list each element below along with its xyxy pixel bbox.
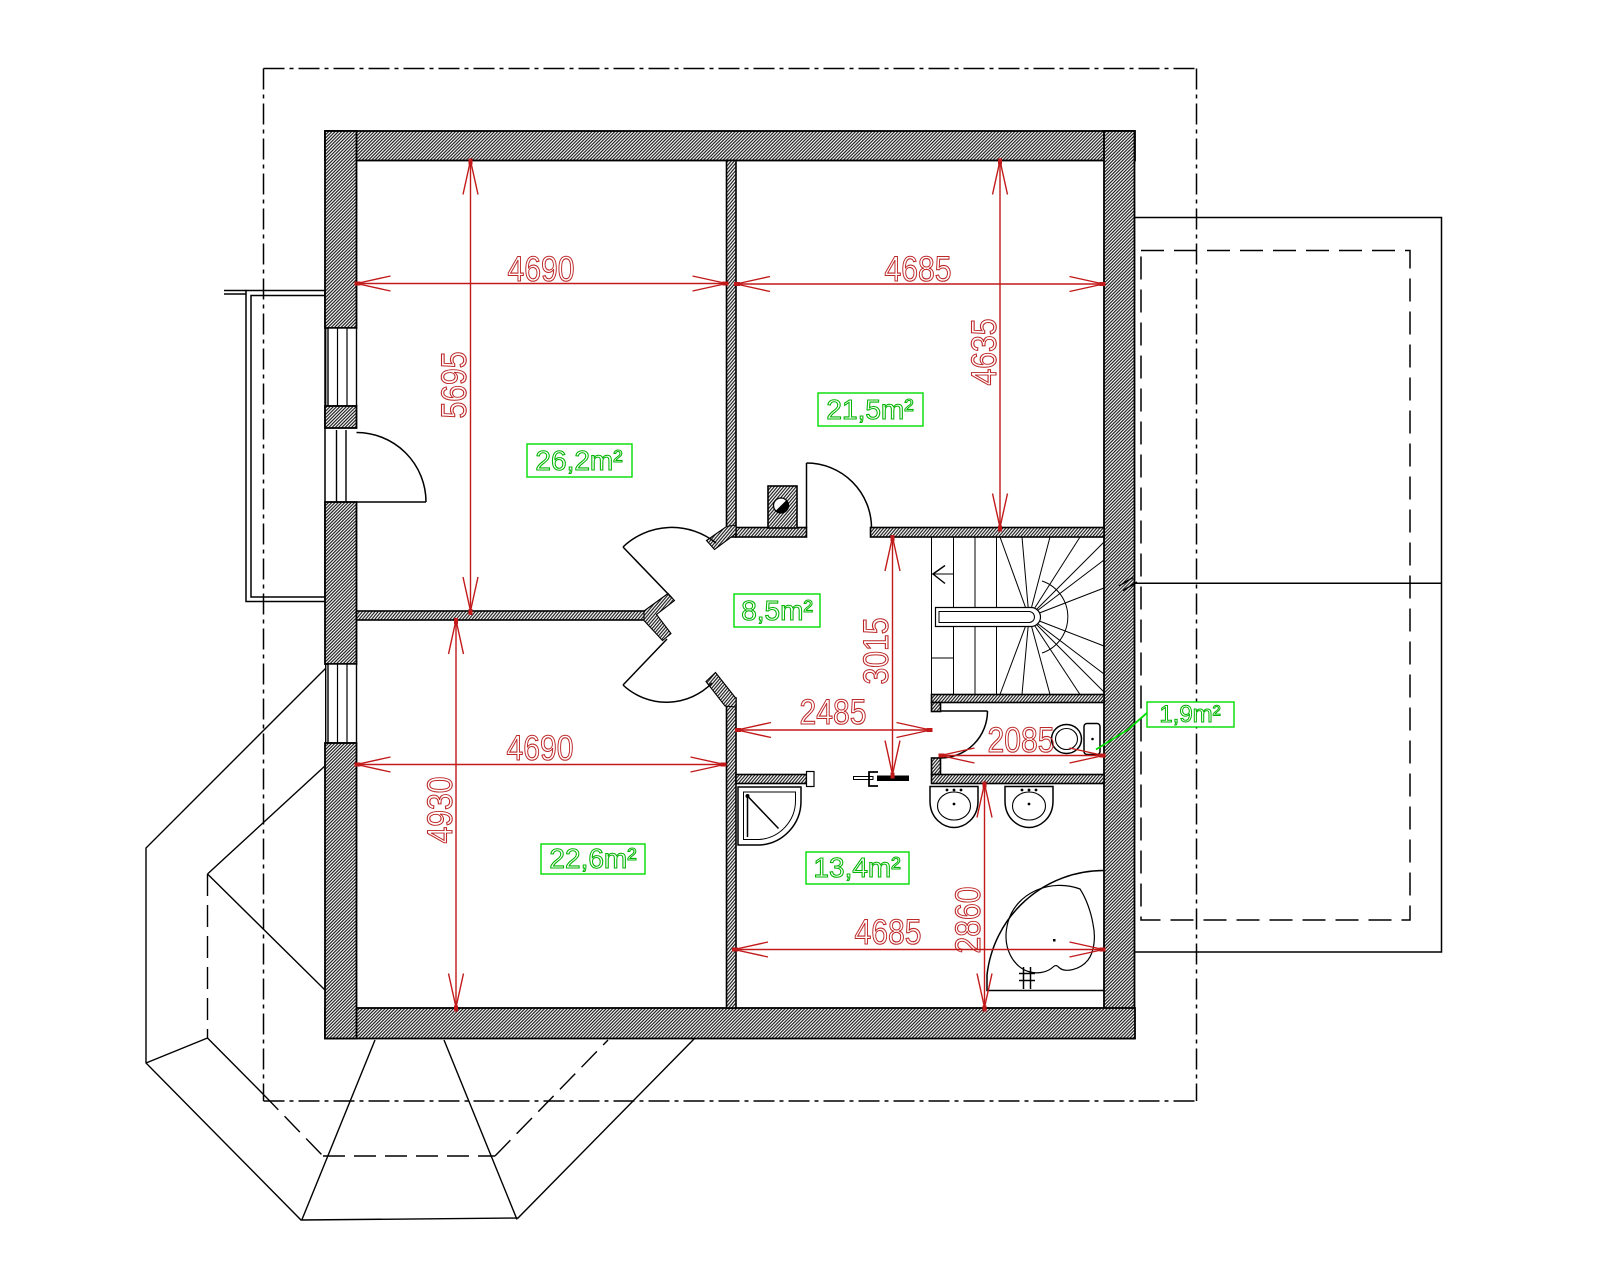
svg-text:4635: 4635 [965, 319, 1004, 386]
svg-text:2860: 2860 [949, 887, 988, 954]
svg-text:13,4m²: 13,4m² [813, 852, 900, 883]
svg-text:4690: 4690 [508, 250, 575, 289]
svg-text:26,2m²: 26,2m² [535, 445, 622, 476]
svg-text:22,6m²: 22,6m² [549, 843, 636, 874]
svg-text:5695: 5695 [435, 352, 474, 419]
svg-text:3015: 3015 [857, 618, 896, 685]
svg-text:8,5m²: 8,5m² [741, 595, 813, 626]
svg-text:2485: 2485 [800, 693, 867, 732]
svg-text:1,9m²: 1,9m² [1159, 701, 1220, 728]
svg-text:4685: 4685 [885, 250, 952, 289]
svg-text:21,5m²: 21,5m² [826, 394, 913, 425]
svg-text:4685: 4685 [855, 913, 922, 952]
svg-text:4690: 4690 [507, 729, 574, 768]
svg-text:4930: 4930 [421, 777, 460, 844]
svg-text:2085: 2085 [988, 721, 1055, 760]
